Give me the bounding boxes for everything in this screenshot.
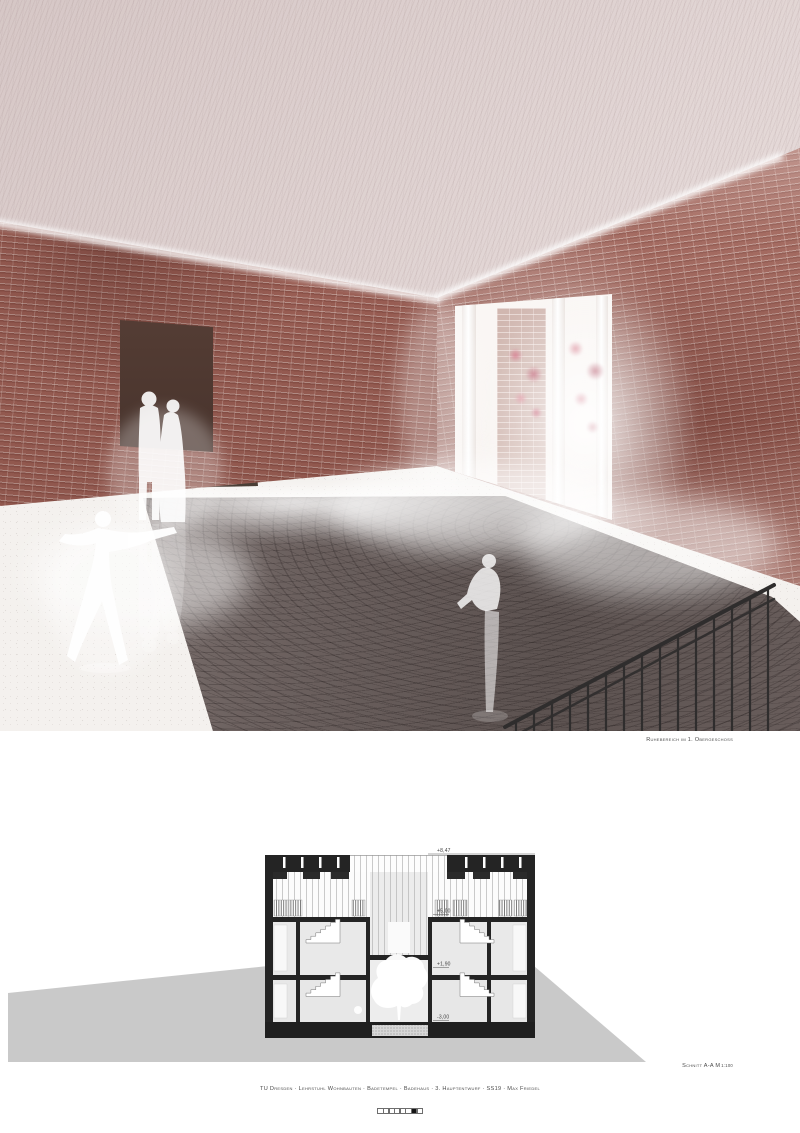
level-label: +5,00 bbox=[437, 909, 451, 915]
floor-glare bbox=[30, 520, 250, 630]
scale-segment bbox=[417, 1108, 423, 1114]
project-title: TU Dresden · Lehrstuhl Wohnbauten · Bade… bbox=[0, 1086, 800, 1092]
section-caption-scale: 1:100 bbox=[721, 1063, 733, 1068]
level-label: -3,00 bbox=[437, 1015, 449, 1021]
building-section bbox=[265, 855, 535, 1038]
floor-glare bbox=[520, 495, 780, 595]
scale-bar bbox=[378, 1108, 423, 1114]
section-caption: Schnitt A-A M1:100 bbox=[682, 1062, 733, 1070]
section-caption-main: Schnitt A-A M bbox=[682, 1063, 720, 1069]
level-label: +1,90 bbox=[437, 962, 451, 968]
interior-rendering bbox=[0, 0, 800, 731]
render-caption: Ruhebereich im 1. Obergeschoss bbox=[646, 737, 733, 744]
corner-haze bbox=[398, 300, 478, 490]
presentation-sheet: Ruhebereich im 1. Obergeschoss bbox=[0, 0, 800, 1133]
section-drawing: +8,47 +5,00 +1,90 -3,00 bbox=[0, 838, 800, 1078]
level-label: +8,47 bbox=[437, 848, 451, 854]
